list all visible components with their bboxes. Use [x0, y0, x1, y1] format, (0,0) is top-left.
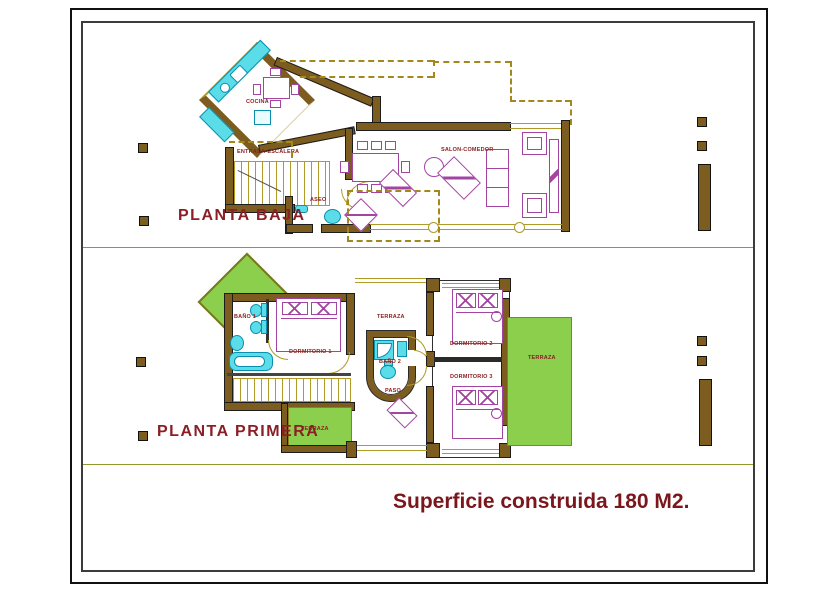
- section-divider-line: [83, 247, 753, 248]
- plot-marker: [697, 336, 707, 346]
- room-label-paso: PASO: [385, 389, 401, 395]
- toilet: [380, 365, 396, 379]
- floor-plan-sheet: COCINA ENTRADA-ESCALERA ASEO: [0, 0, 840, 594]
- armchair-cushion: [527, 198, 542, 213]
- roof-outline-dashed: [300, 76, 433, 78]
- room-label-entrada: ENTRADA-ESCALERA: [237, 150, 299, 156]
- plot-marker: [697, 141, 707, 151]
- blanket-line: [456, 409, 500, 410]
- pillow: [478, 293, 498, 308]
- shower: [374, 340, 394, 360]
- wall-post: [346, 441, 357, 458]
- blanket-line: [281, 318, 337, 319]
- wall: [286, 224, 313, 233]
- armchair: [522, 193, 547, 218]
- porch-column: [514, 222, 525, 233]
- window-line: [442, 453, 499, 454]
- room-label-dormitorio3: DORMITORIO 3: [450, 375, 493, 381]
- shower-pan: [377, 343, 392, 358]
- roof-outline-dashed: [510, 100, 571, 102]
- tv-cabinet: [549, 139, 559, 213]
- plot-wall-marker: [698, 164, 711, 231]
- plot-marker: [139, 216, 149, 226]
- plot-marker: [136, 357, 146, 367]
- window-line: [442, 283, 499, 284]
- pillow: [282, 302, 308, 315]
- wall: [434, 357, 502, 362]
- plot-marker: [138, 143, 148, 153]
- room-label-terraza-top: TERRAZA: [377, 315, 405, 321]
- wall: [356, 122, 511, 131]
- roof-outline-dashed: [570, 100, 572, 125]
- chair: [270, 68, 281, 76]
- pillow: [478, 390, 498, 405]
- wall: [561, 120, 570, 232]
- blanket-line: [456, 312, 500, 313]
- plot-marker: [697, 356, 707, 366]
- wall-post: [426, 443, 440, 458]
- pillow: [311, 302, 337, 315]
- roof-outline-dashed: [433, 61, 511, 63]
- plot-marker: [138, 431, 148, 441]
- wall: [227, 373, 351, 376]
- floor-title-planta-baja: PLANTA BAJA: [178, 207, 306, 225]
- bathtub: [229, 352, 273, 371]
- bed-dormitorio-3: [452, 386, 503, 439]
- kitchen-appliance: [254, 110, 271, 125]
- armchair-cushion: [527, 137, 542, 150]
- plot-wall-marker: [699, 379, 712, 446]
- room-label-salon: SALON-COMEDOR: [441, 148, 493, 154]
- porch-line: [357, 450, 427, 451]
- wall: [426, 386, 434, 443]
- staircase: [233, 378, 351, 402]
- room-label-bano2: BAÑO 2: [379, 360, 401, 366]
- sofa: [486, 149, 509, 207]
- porch-line: [357, 445, 427, 446]
- roof-outline-dashed: [229, 141, 292, 143]
- section-divider-line: [83, 464, 753, 465]
- room-label-cocina: COCINA: [246, 100, 269, 106]
- wall: [224, 293, 233, 407]
- chair: [357, 141, 368, 150]
- sink: [230, 335, 244, 351]
- plot-marker: [697, 117, 707, 127]
- window-line: [442, 287, 499, 288]
- pillow: [456, 390, 476, 405]
- window-line: [510, 128, 564, 129]
- wall: [426, 292, 434, 336]
- wall: [281, 445, 353, 453]
- chair: [291, 84, 299, 95]
- terrace-rail-line: [355, 278, 432, 279]
- kitchen-table: [263, 77, 290, 99]
- toilet: [324, 209, 341, 224]
- window-line: [510, 123, 564, 124]
- room-label-aseo: ASEO: [310, 198, 326, 204]
- roof-outline-dashed: [280, 60, 433, 62]
- bidet-tank: [261, 320, 267, 334]
- upper-terrace-overlay-dashed: [347, 190, 440, 242]
- window-line: [442, 449, 499, 450]
- built-area-text: Superficie construida 180 M2.: [393, 490, 689, 514]
- chair: [385, 141, 396, 150]
- sink: [397, 341, 407, 357]
- terrace-rail-line: [355, 282, 432, 283]
- chair: [340, 161, 349, 173]
- chair: [371, 141, 382, 150]
- room-label-bano1: BAÑO 1: [234, 315, 256, 321]
- chair: [270, 100, 281, 108]
- room-label-dormitorio1: DORMITORIO 1: [289, 350, 332, 356]
- room-label-terraza-right: TERRAZA: [528, 356, 556, 362]
- bathtub-basin: [234, 356, 265, 367]
- pillow: [456, 293, 476, 308]
- wall: [346, 293, 355, 355]
- floor-title-planta-primera: PLANTA PRIMERA: [157, 423, 319, 441]
- bed-dormitorio-2: [452, 289, 503, 344]
- roof-outline-dashed: [291, 141, 293, 158]
- armchair: [522, 132, 547, 155]
- chair: [401, 161, 410, 173]
- room-label-dormitorio2: DORMITORIO 2: [450, 342, 493, 348]
- chair: [253, 84, 261, 95]
- terrace-right: [507, 317, 572, 446]
- wall-post: [426, 278, 440, 292]
- bed-dormitorio-1: [276, 298, 341, 352]
- toilet-tank: [261, 303, 267, 317]
- roof-outline-dashed: [510, 61, 512, 102]
